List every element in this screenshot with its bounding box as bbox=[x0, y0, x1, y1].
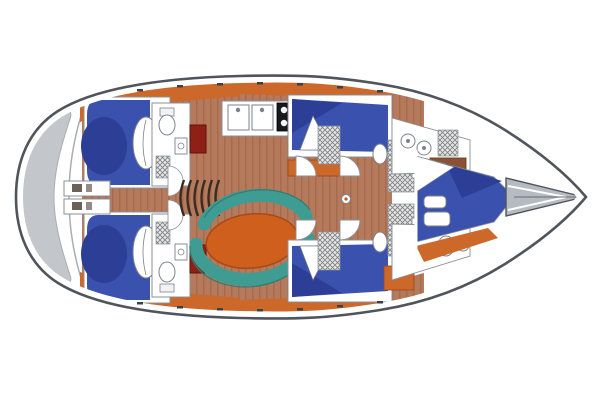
faucet bbox=[236, 108, 240, 112]
deck-plan-drawing bbox=[0, 0, 600, 400]
mast-foot bbox=[342, 195, 351, 204]
toilet bbox=[159, 262, 175, 282]
yacht-deck-plan bbox=[0, 0, 600, 400]
toilet bbox=[373, 144, 387, 164]
shower-grate bbox=[318, 232, 340, 270]
toilet-tank bbox=[160, 284, 174, 292]
drain bbox=[422, 146, 426, 150]
cabin-door-port bbox=[190, 125, 206, 153]
pillow bbox=[424, 196, 446, 208]
berth-shading bbox=[81, 225, 127, 283]
burner bbox=[281, 107, 287, 113]
faucet bbox=[260, 108, 264, 112]
shower-grate bbox=[438, 130, 458, 156]
pillow bbox=[424, 212, 450, 226]
sink bbox=[175, 138, 187, 154]
toilet bbox=[159, 115, 175, 135]
drain bbox=[406, 139, 410, 143]
shower-grate bbox=[318, 126, 340, 164]
toilet bbox=[373, 232, 387, 252]
burner bbox=[281, 120, 287, 126]
sink bbox=[175, 244, 187, 260]
berth-shading bbox=[81, 117, 127, 175]
